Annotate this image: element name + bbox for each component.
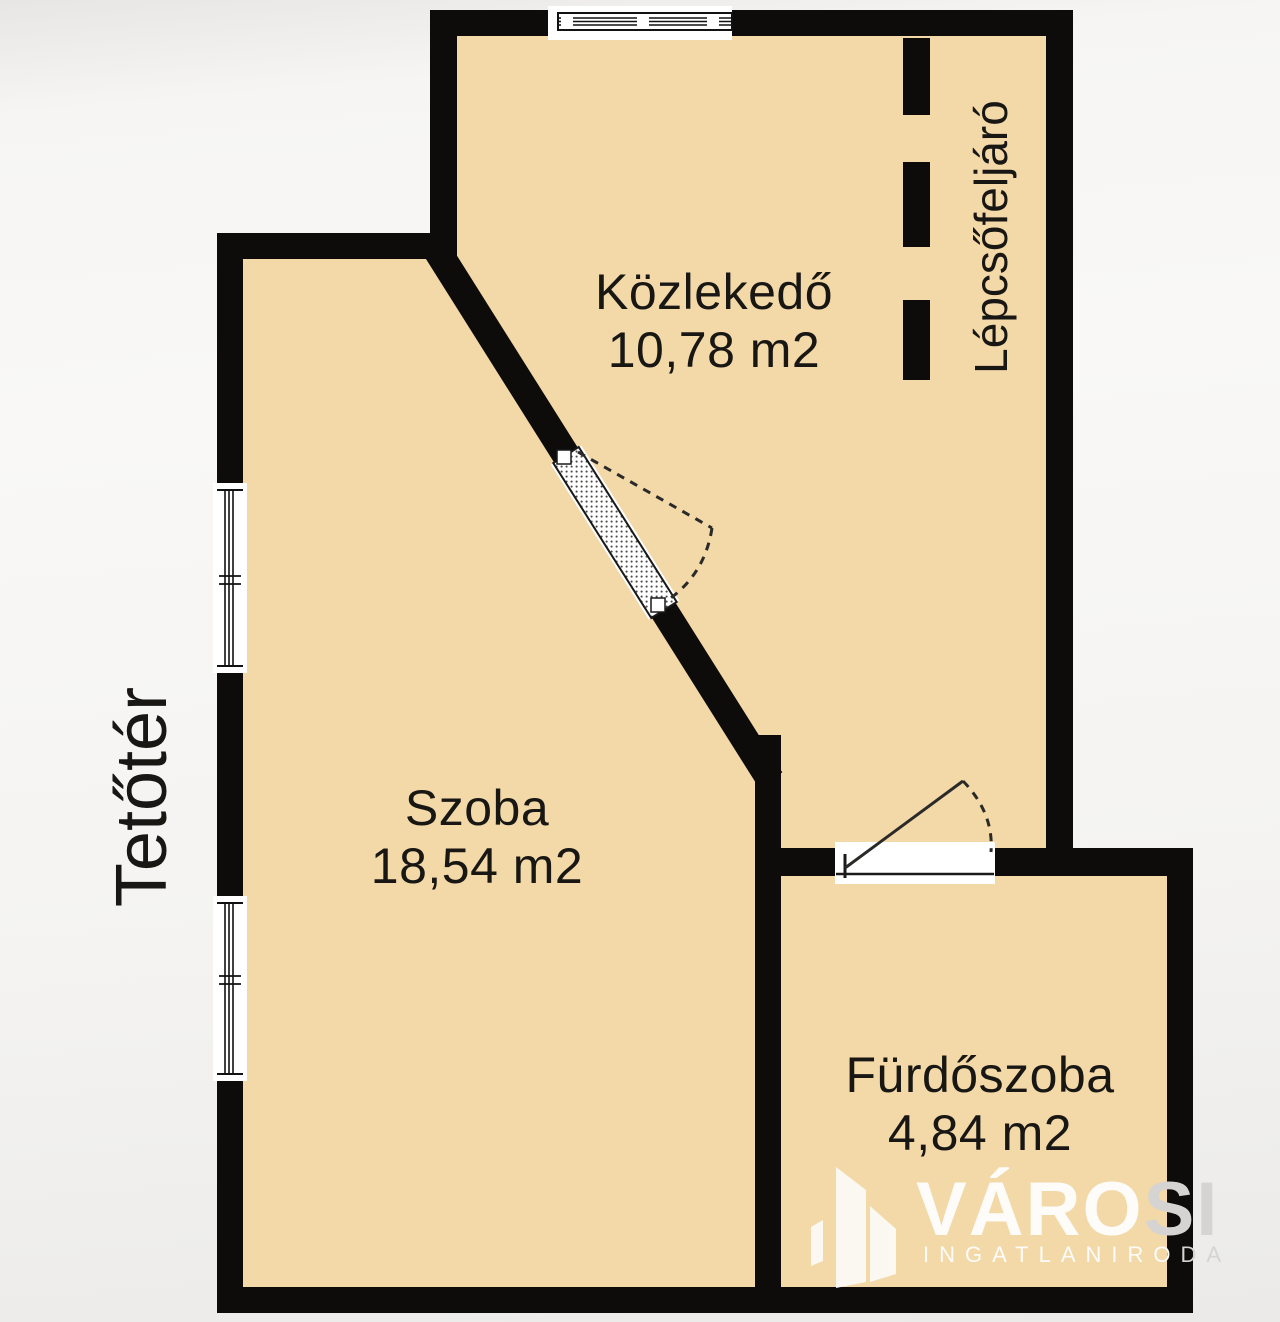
attic-level-label: Tetőtér: [101, 687, 183, 907]
wall-bottom: [217, 1287, 1193, 1313]
wall-divider: [755, 735, 781, 1313]
window-left-lower: [213, 896, 247, 1081]
room-name: Közlekedő: [595, 263, 833, 321]
watermark-brand: VÁROSI: [916, 1172, 1219, 1248]
room-label-furdoszoba: Fürdőszoba 4,84 m2: [845, 1046, 1114, 1162]
watermark-subtitle-main: INGATLANIRO: [923, 1242, 1181, 1267]
wall-corridor-left: [430, 10, 457, 233]
staircase-label: Lépcsőfeljáró: [964, 100, 1018, 374]
wall-top: [430, 10, 1073, 36]
room-area: 18,54 m2: [371, 837, 583, 895]
floorplan-page: Közlekedő 10,78 m2 Szoba 18,54 m2 Fürdős…: [0, 0, 1280, 1322]
room-name: Fürdőszoba: [845, 1046, 1114, 1104]
room-area: 10,78 m2: [595, 321, 833, 379]
room-area: 4,84 m2: [845, 1104, 1114, 1162]
watermark-brand-tail: SI: [1144, 1167, 1220, 1252]
room-label-kozlekedo: Közlekedő 10,78 m2: [595, 263, 833, 379]
staircase-dashed-wall: [903, 38, 930, 380]
room-name: Szoba: [371, 779, 583, 837]
window-top: [548, 6, 732, 40]
watermark-subtitle-tail: DA: [1181, 1242, 1232, 1267]
wall-left: [217, 233, 243, 1313]
wall-right: [1046, 10, 1073, 848]
window-left-upper: [213, 483, 247, 673]
wall-room-top: [217, 233, 457, 259]
watermark-brand-main: VÁRO: [916, 1167, 1144, 1252]
room-label-szoba: Szoba 18,54 m2: [371, 779, 583, 895]
watermark-subtitle: INGATLANIRODA: [923, 1244, 1231, 1266]
